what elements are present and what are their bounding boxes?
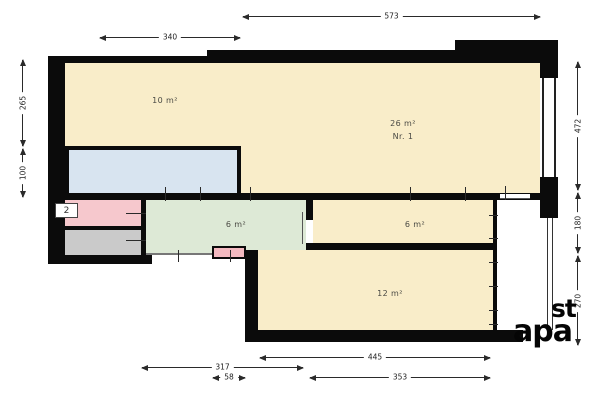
dimension-340: 340 <box>100 37 240 38</box>
room-gray <box>65 230 146 257</box>
wall-left-upper <box>48 56 65 207</box>
dimension-180: 180 <box>577 193 578 253</box>
window-tick <box>489 286 498 287</box>
wall-tick <box>505 186 506 200</box>
wall-horizontal-middle <box>48 193 540 200</box>
room-10-label: 10 m² <box>130 95 200 108</box>
dimension-58-label: 58 <box>220 373 238 382</box>
dimension-270: 270 <box>577 256 578 345</box>
dimension-573-label: 573 <box>380 12 402 21</box>
door-line <box>126 213 146 214</box>
wall-tick <box>165 187 166 201</box>
dimension-58: 58 <box>213 377 245 378</box>
wall-tick <box>465 187 466 201</box>
room-blue <box>65 146 241 198</box>
dimension-445-label: 445 <box>364 353 386 362</box>
window-right-icon <box>542 78 556 177</box>
wall-tick <box>250 187 251 201</box>
wall-right-middle <box>540 177 558 218</box>
dimension-100-label: 100 <box>19 162 28 184</box>
room-12-label: 12 m² <box>355 288 425 301</box>
wall-tick <box>410 187 411 201</box>
dimension-265: 265 <box>22 60 23 146</box>
dimension-353-label: 353 <box>389 373 411 382</box>
wall-top-middle <box>207 50 456 63</box>
room-26-number-text: Nr. 1 <box>368 131 438 144</box>
wall-bottom-left <box>48 255 152 264</box>
watermark-text-line2: apa <box>513 317 572 347</box>
dimension-340-label: 340 <box>159 33 181 42</box>
door-line <box>126 240 146 241</box>
dimension-100: 100 <box>22 149 23 197</box>
dimension-317: 317 <box>142 367 303 368</box>
room-26-label: 26 m² Nr. 1 <box>368 118 438 144</box>
dimension-317-label: 317 <box>211 363 233 372</box>
window-tick <box>489 310 498 311</box>
dimension-472-label: 472 <box>574 115 583 137</box>
unit-number-badge: 2 <box>55 203 78 218</box>
window-tick <box>489 262 498 263</box>
window-tick <box>489 215 498 216</box>
window-tick <box>489 324 498 325</box>
wall-top-left <box>48 56 208 63</box>
wall-room6-bottom <box>306 243 497 250</box>
door-leaf-line <box>302 212 303 244</box>
hall-6-label: 6 m² <box>201 219 271 232</box>
wall-right-upper <box>540 40 558 78</box>
wall-tick <box>178 250 179 262</box>
wall-tick <box>230 250 231 262</box>
dimension-353: 353 <box>310 377 490 378</box>
dimension-180-label: 180 <box>574 212 583 234</box>
dimension-573: 573 <box>243 16 540 17</box>
window-tick <box>489 238 498 239</box>
wall-room12-left <box>245 250 258 332</box>
wall-bottom-main <box>245 330 523 342</box>
dimension-445: 445 <box>260 357 490 358</box>
floor-plan-canvas: 10 m² 26 m² Nr. 1 6 m² 6 m² 12 m² 2 573 … <box>0 0 600 400</box>
wall-tick <box>200 187 201 201</box>
dimension-265-label: 265 <box>19 92 28 114</box>
wall-hall-room6-divider <box>306 193 313 220</box>
room-6-label: 6 m² <box>380 219 450 232</box>
small-pink-box <box>212 246 246 259</box>
wall-right-thin <box>493 197 497 332</box>
room-26-area-text: 26 m² <box>368 118 438 131</box>
dimension-472: 472 <box>577 62 578 190</box>
